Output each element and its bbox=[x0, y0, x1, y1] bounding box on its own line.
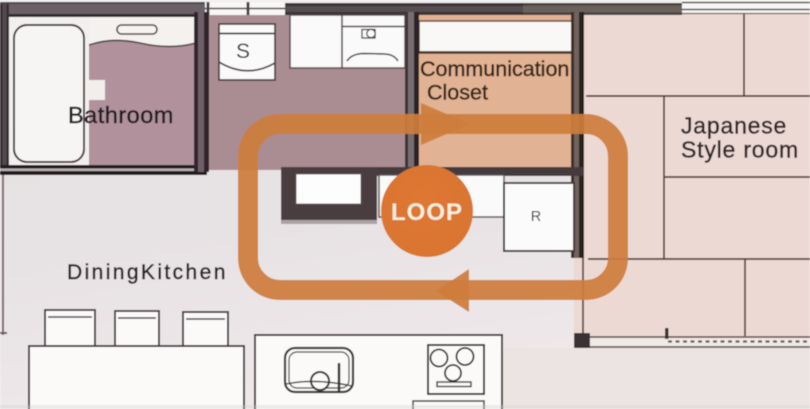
svg-text:LOOP: LOOP bbox=[391, 199, 463, 226]
svg-text:DiningKitchen: DiningKitchen bbox=[67, 261, 228, 284]
svg-text:Closet: Closet bbox=[427, 81, 488, 105]
svg-text:Communication: Communication bbox=[420, 57, 569, 81]
svg-text:Japanese: Japanese bbox=[681, 113, 787, 139]
svg-text:R: R bbox=[531, 209, 541, 225]
svg-text:Bathroom: Bathroom bbox=[68, 102, 174, 128]
svg-text:S: S bbox=[236, 40, 250, 63]
svg-text:Style room: Style room bbox=[681, 137, 799, 163]
